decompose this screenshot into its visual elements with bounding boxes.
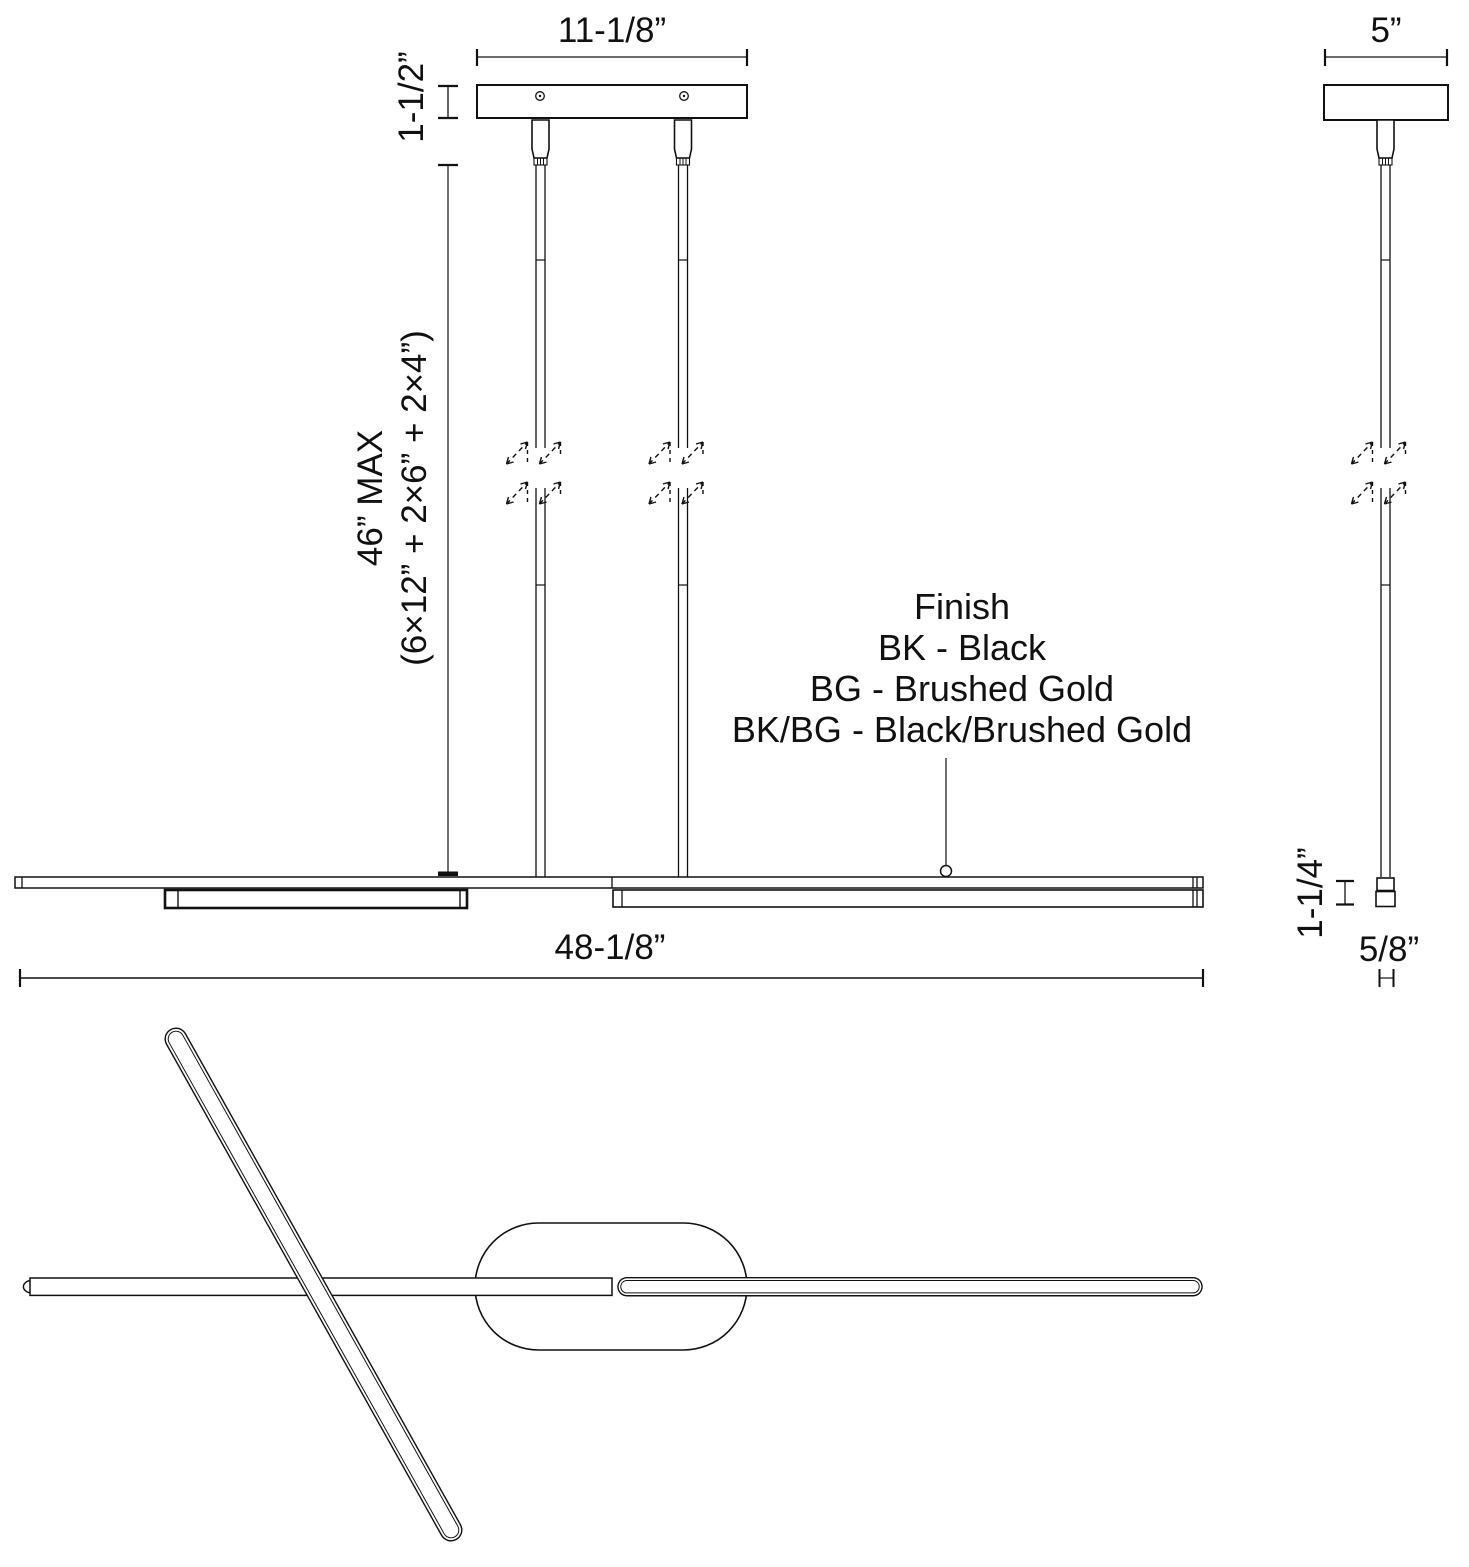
side-canopy xyxy=(1324,85,1448,120)
fixture-main-bar xyxy=(15,877,1203,888)
fixture-width-dimension xyxy=(20,969,1203,987)
finish-option: BK/BG - Black/Brushed Gold xyxy=(732,709,1192,750)
side-fixture-body xyxy=(1376,878,1395,907)
side-fixture-height-label: 1-1/4” xyxy=(1292,847,1331,938)
suspension-formula-line: (6×12” + 2×6” + 2×4”) xyxy=(393,330,437,666)
side-suspension-rod xyxy=(1352,120,1406,877)
canopy-plate xyxy=(477,85,747,118)
finish-option: BK - Black xyxy=(732,627,1192,668)
front-canopy-height-dimension xyxy=(438,86,458,118)
suspension-rod-right xyxy=(649,120,703,877)
side-canopy-width-dimension xyxy=(1325,49,1447,66)
dimension-tick xyxy=(438,872,458,877)
front-canopy-height-label: 1-1/2” xyxy=(393,51,432,142)
front-elevation-view xyxy=(15,49,1203,987)
fixture-width-label: 48-1/8” xyxy=(555,929,666,968)
finish-legend-title: Finish xyxy=(732,586,1192,627)
side-fixture-depth-dimension xyxy=(1380,969,1394,987)
front-canopy-width-dimension xyxy=(477,49,747,66)
side-fixture-depth-label: 5/8” xyxy=(1359,931,1419,970)
fixture-lower-right-bar xyxy=(613,890,1203,907)
suspension-length-dimension xyxy=(438,165,458,876)
suspension-length-label: 46” MAX (6×12” + 2×6” + 2×4”) xyxy=(349,330,437,666)
plan-left-bar-endcap xyxy=(23,1281,30,1293)
finish-leader-line xyxy=(941,758,952,877)
suspension-rod-left xyxy=(507,120,561,877)
finish-option: BG - Brushed Gold xyxy=(732,668,1192,709)
finish-legend: Finish BK - Black BG - Brushed Gold BK/B… xyxy=(732,586,1192,750)
fixture-lower-left-bar xyxy=(165,890,467,908)
front-canopy xyxy=(477,85,747,118)
side-canopy-width-label: 5” xyxy=(1370,12,1401,51)
plan-view xyxy=(23,1039,1193,1530)
front-canopy-width-label: 11-1/8” xyxy=(558,12,666,51)
leader-dot xyxy=(941,866,952,877)
suspension-max-line: 46” MAX xyxy=(349,330,393,666)
spec-sheet: 11-1/8” 1-1/2” 46” MAX (6×12” + 2×6” + 2… xyxy=(0,0,1469,1567)
dimension-drawing xyxy=(0,0,1469,1567)
side-elevation-view xyxy=(1324,49,1448,987)
side-fixture-height-dimension xyxy=(1336,881,1354,905)
front-fixture-body xyxy=(15,877,1203,908)
